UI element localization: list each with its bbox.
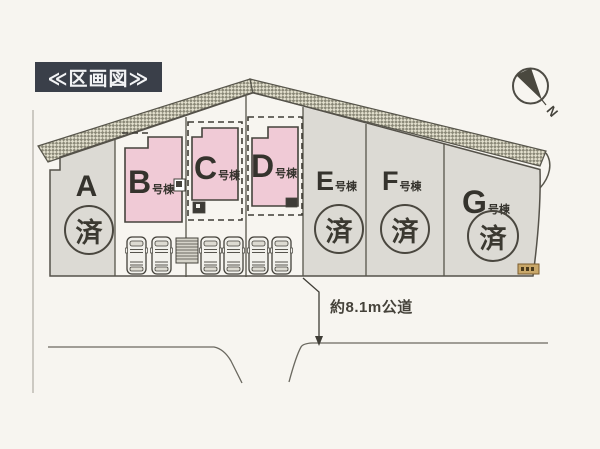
page-title: ≪区画図≫ — [35, 62, 162, 92]
compass-north-label: N — [544, 103, 562, 120]
plot-label-e: E号棟 — [316, 168, 357, 195]
stairs — [176, 238, 198, 263]
car-icon — [126, 237, 148, 274]
site-plan-page: N ≪区画図≫ A B号棟 C号棟 D号棟 E号棟 F号棟 G号棟 済 済 済 … — [0, 0, 600, 449]
car-icon — [271, 237, 293, 274]
sold-badge-g: 済 — [467, 210, 519, 262]
building-b-entrance-mark — [176, 181, 182, 187]
car-icon — [248, 237, 270, 274]
page-title-text: ≪区画図≫ — [48, 64, 150, 91]
building-d-entrance-icon — [286, 198, 297, 207]
parking-cars — [126, 237, 293, 274]
plot-label-a: A — [62, 172, 112, 202]
road-dimension-arrow — [303, 278, 323, 346]
plot-label-c: C号棟 — [194, 152, 240, 184]
sold-badge-a: 済 — [64, 205, 114, 255]
plot-label-b: B号棟 — [128, 166, 174, 198]
sold-badge-f: 済 — [380, 204, 430, 254]
car-icon — [223, 237, 245, 274]
car-icon — [151, 237, 173, 274]
car-icon — [200, 237, 222, 274]
compass-icon: N — [513, 68, 561, 120]
road-lines — [48, 343, 548, 383]
plot-label-f: F号棟 — [382, 168, 422, 195]
building-c-entrance-mark — [196, 204, 200, 208]
site-sign — [518, 264, 539, 274]
sold-badge-e: 済 — [314, 204, 364, 254]
plot-label-d: D号棟 — [251, 150, 297, 182]
road-width-label: 約8.1m公道 — [330, 296, 413, 317]
